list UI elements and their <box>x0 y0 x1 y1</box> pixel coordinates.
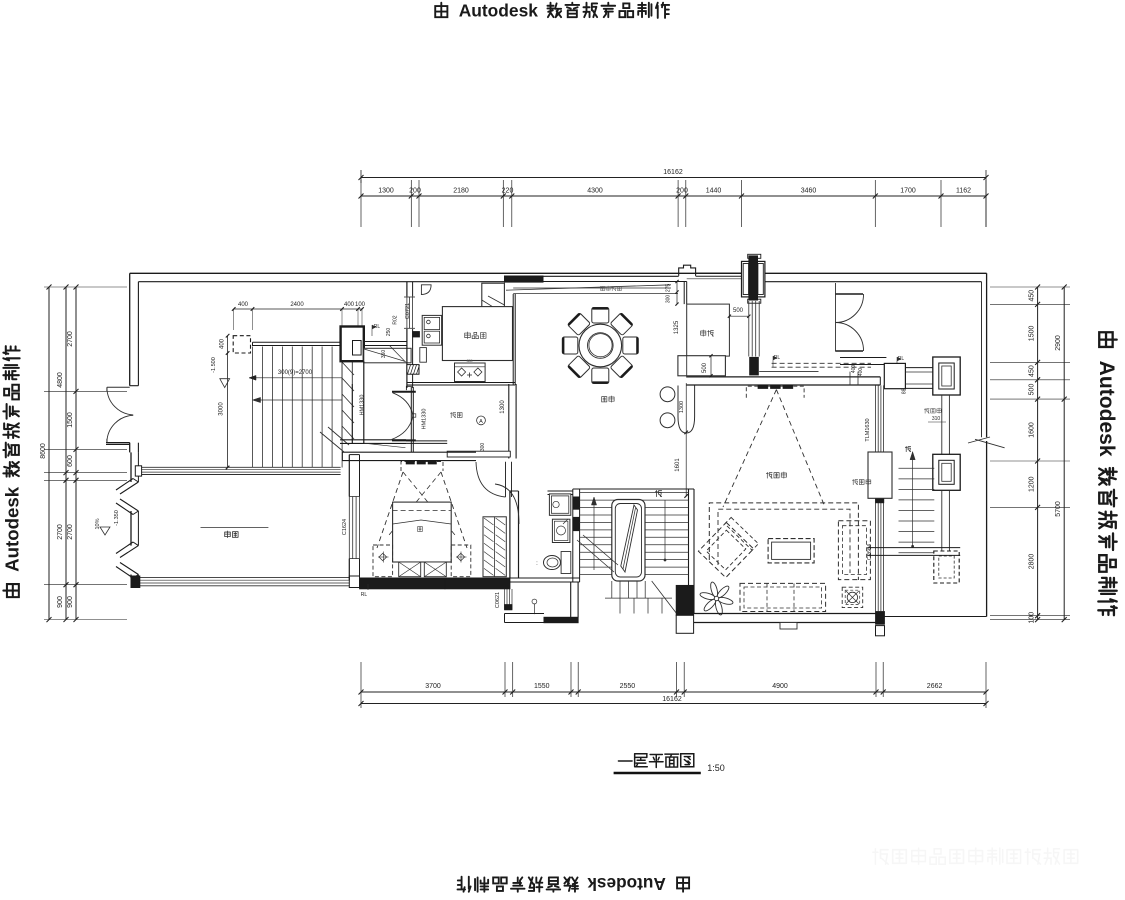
svg-text:200: 200 <box>676 188 688 195</box>
svg-text:1550: 1550 <box>534 683 550 690</box>
svg-text:A: A <box>479 419 483 425</box>
svg-text:1500: 1500 <box>67 412 74 428</box>
svg-text:C2664: C2664 <box>867 544 873 560</box>
svg-text:1500: 1500 <box>1029 326 1036 342</box>
svg-text:100: 100 <box>1029 612 1036 624</box>
svg-text:1162: 1162 <box>956 188 971 195</box>
svg-text:2800: 2800 <box>1029 554 1036 570</box>
svg-text:Autodesk: Autodesk <box>587 874 666 894</box>
svg-text:3460: 3460 <box>801 188 817 195</box>
svg-text:500: 500 <box>733 308 744 314</box>
svg-text:10%: 10% <box>95 518 101 529</box>
svg-text:C1624: C1624 <box>342 519 348 535</box>
svg-text:2700: 2700 <box>57 524 64 540</box>
svg-text:360: 360 <box>381 350 387 359</box>
svg-text:C0621: C0621 <box>495 592 501 608</box>
svg-text:Autodesk: Autodesk <box>1095 361 1118 457</box>
svg-text:1300: 1300 <box>500 400 506 414</box>
svg-text:16162: 16162 <box>662 696 682 703</box>
svg-text:4900: 4900 <box>772 683 788 690</box>
svg-text:400: 400 <box>851 365 857 374</box>
svg-text:1600: 1600 <box>1029 422 1036 438</box>
svg-text:100: 100 <box>355 302 366 308</box>
svg-text:2900: 2900 <box>1055 335 1062 351</box>
svg-text:200: 200 <box>409 188 421 195</box>
svg-text:1440: 1440 <box>706 188 722 195</box>
svg-text:500: 500 <box>1029 384 1036 396</box>
svg-text:RL: RL <box>361 592 368 598</box>
svg-text:R02: R02 <box>393 315 399 324</box>
svg-text:600: 600 <box>67 455 74 467</box>
svg-text:300(9)=2700: 300(9)=2700 <box>278 370 313 376</box>
svg-text:TLM1630: TLM1630 <box>865 418 871 441</box>
svg-text:Autodesk: Autodesk <box>1 486 22 572</box>
svg-text:1:50: 1:50 <box>707 763 725 773</box>
svg-text:1325: 1325 <box>674 320 680 334</box>
svg-text:400: 400 <box>220 338 226 349</box>
svg-text:1300: 1300 <box>378 188 394 195</box>
svg-text:4800: 4800 <box>57 372 64 388</box>
svg-text:300: 300 <box>480 443 486 452</box>
svg-text:HM1330: HM1330 <box>422 409 428 430</box>
svg-text:1300: 1300 <box>679 401 685 413</box>
svg-text:400: 400 <box>344 302 355 308</box>
svg-text:1700: 1700 <box>900 188 916 195</box>
svg-text:5700: 5700 <box>1055 501 1062 517</box>
svg-text:2550: 2550 <box>620 683 636 690</box>
svg-text:2662: 2662 <box>927 683 943 690</box>
svg-text:900: 900 <box>67 596 74 608</box>
svg-text:220: 220 <box>502 188 514 195</box>
svg-text:-1.500: -1.500 <box>211 357 217 373</box>
svg-text:500: 500 <box>702 362 708 373</box>
svg-text:400: 400 <box>858 368 864 377</box>
svg-text:1601: 1601 <box>675 458 681 472</box>
svg-text:3000: 3000 <box>219 402 225 416</box>
svg-text:250: 250 <box>386 328 392 337</box>
svg-text:900: 900 <box>57 596 64 608</box>
svg-text:16162: 16162 <box>663 169 683 176</box>
svg-text:450: 450 <box>1029 365 1036 377</box>
svg-text:4300: 4300 <box>587 188 603 195</box>
svg-text:C0721: C0721 <box>405 303 411 319</box>
svg-text:2180: 2180 <box>453 188 469 195</box>
svg-text:450: 450 <box>1029 290 1036 302</box>
svg-text:400: 400 <box>238 302 249 308</box>
svg-text:300: 300 <box>666 295 672 304</box>
svg-text:HM1330: HM1330 <box>360 395 366 416</box>
svg-text:1200: 1200 <box>1029 476 1036 492</box>
svg-text:-1.350: -1.350 <box>114 510 120 526</box>
svg-text:3700: 3700 <box>425 683 441 690</box>
svg-text:2700: 2700 <box>67 524 74 540</box>
svg-text:888: 888 <box>467 359 473 363</box>
svg-text:275: 275 <box>666 284 672 293</box>
svg-text:Autodesk: Autodesk <box>459 1 539 21</box>
svg-text:2700: 2700 <box>67 331 74 347</box>
svg-text:8600: 8600 <box>40 443 47 459</box>
svg-text:310: 310 <box>932 416 941 422</box>
svg-text:2400: 2400 <box>290 302 304 308</box>
